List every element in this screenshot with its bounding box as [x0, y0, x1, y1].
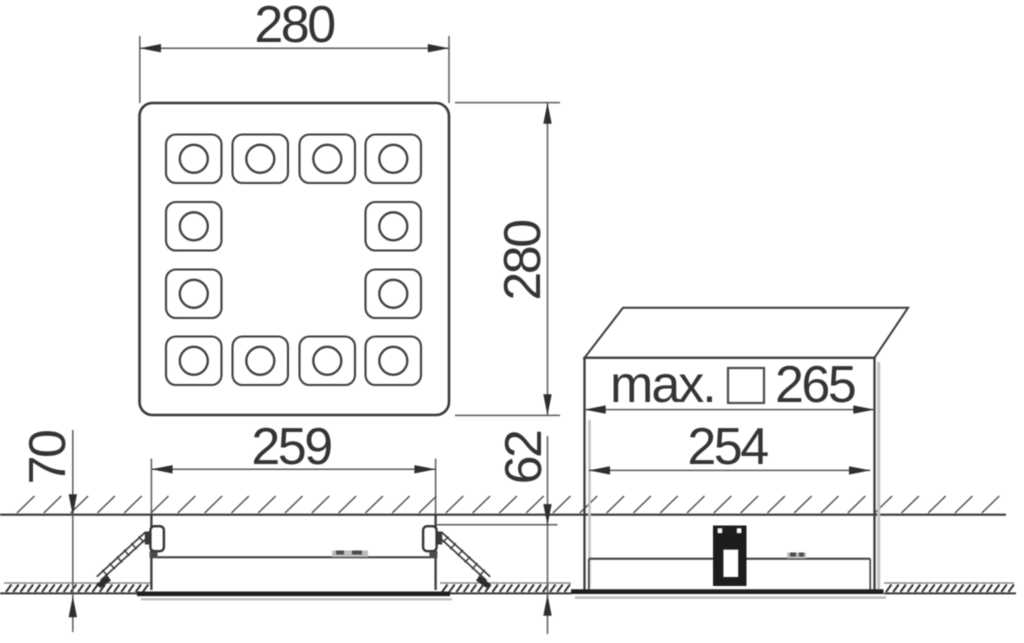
svg-text:265: 265	[775, 356, 855, 414]
svg-text:62: 62	[495, 431, 553, 484]
svg-text:254: 254	[687, 418, 768, 476]
svg-text:max.: max.	[610, 356, 715, 414]
svg-text:259: 259	[251, 418, 331, 476]
svg-text:70: 70	[19, 431, 77, 484]
svg-text:280: 280	[494, 221, 552, 301]
svg-text:280: 280	[254, 0, 334, 54]
